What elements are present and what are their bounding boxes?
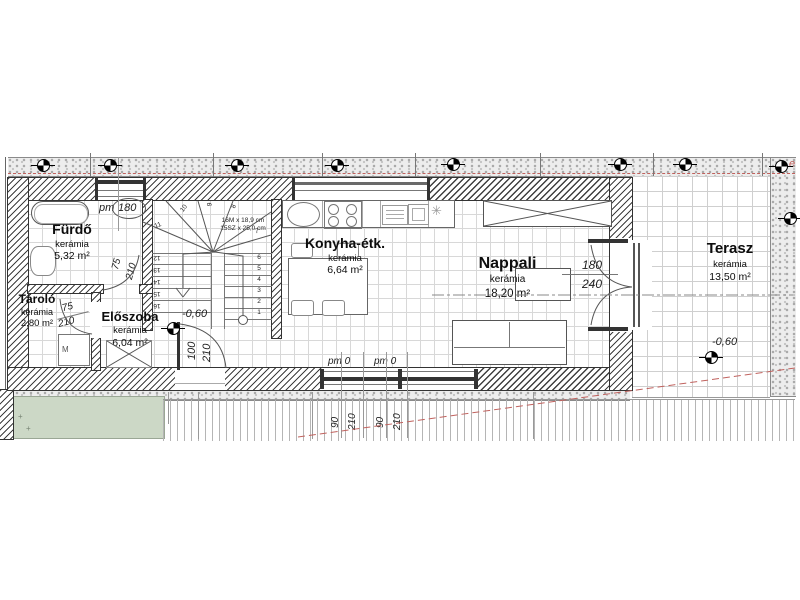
kitchen-window-frame — [295, 182, 427, 185]
floor-plan: + + M — [0, 0, 800, 600]
garden-area — [13, 396, 165, 439]
counter-divider — [322, 201, 323, 227]
witness-line — [312, 392, 313, 439]
stove-burner — [328, 216, 339, 227]
stair-step — [152, 264, 211, 265]
bathroom-window-sill — [98, 196, 143, 197]
sofa-cushion-divider — [509, 322, 510, 347]
room-material: kerámia — [37, 239, 107, 251]
entry-door-opening — [175, 368, 225, 390]
room-label-konyha: Konyha-étk. kerámia 6,64 m² — [295, 235, 395, 278]
stair-number: 15 — [150, 290, 164, 297]
stove-burner — [328, 204, 339, 215]
terrace-door-panel — [633, 243, 635, 327]
kitchen-basin-inner — [412, 208, 425, 221]
dim-window1-width: 90 — [330, 417, 341, 428]
window-jamb — [143, 178, 146, 200]
kitchen-window-sill — [295, 190, 427, 191]
stair-number: 6 — [252, 254, 266, 261]
stair-spec-line2: 15SZ x 25,0 cm — [193, 225, 293, 233]
bathroom-window-frame — [98, 180, 143, 184]
witness-line — [198, 392, 199, 439]
room-name: Tároló — [6, 292, 68, 307]
survey-marker-icon — [699, 351, 723, 364]
stair-spec-text: 16M x 18,9 cm 15SZ x 25,0 cm — [193, 217, 293, 233]
stair-number: 3 — [252, 287, 266, 294]
window-jamb — [320, 369, 324, 389]
paving-strip-bottom — [163, 399, 795, 441]
dim-entry-door-height: 210 — [201, 344, 213, 362]
survey-marker-icon — [31, 159, 55, 172]
dim-entry-door-width: 100 — [186, 342, 198, 360]
terrace-door-head — [588, 239, 628, 243]
stove-burner — [346, 204, 357, 215]
counter-divider — [380, 201, 381, 227]
red-setback-line-top — [8, 173, 795, 174]
room-material: kerámia — [6, 307, 68, 318]
washing-machine: M — [58, 334, 90, 366]
bathroom-window-sill — [98, 190, 143, 191]
room-name: Terasz — [698, 240, 762, 259]
dining-chair — [291, 300, 314, 316]
window-jamb — [95, 178, 98, 200]
gravel-strip-right — [770, 157, 796, 397]
elevation-terrace: -0,60 — [712, 336, 737, 348]
witness-line — [168, 392, 169, 424]
witness-line — [363, 352, 364, 438]
survey-marker-icon — [608, 158, 632, 171]
stair-step — [152, 288, 211, 289]
stair-winder-number: 9 — [206, 197, 214, 211]
room-label-nappali: Nappali kerámia 18,20 m² — [445, 254, 570, 301]
survey-marker-icon — [98, 159, 122, 172]
dishwasher — [382, 205, 408, 225]
stair-step — [152, 300, 211, 301]
room-label-terasz: Terasz kerámia 13,50 m² — [698, 240, 762, 284]
stair-step — [152, 276, 211, 277]
window-jamb — [427, 178, 430, 200]
boundary-line-left — [5, 157, 6, 390]
fridge-icon: ✳ — [431, 203, 442, 219]
band-tick — [213, 153, 214, 180]
elevation-stair: -0,60 — [182, 308, 207, 320]
room-area: 6,04 m² — [96, 337, 164, 350]
stair-number: 5 — [252, 265, 266, 272]
stair-number: 12 — [150, 254, 164, 261]
retaining-wall-left — [0, 390, 13, 439]
survey-marker-icon — [673, 158, 697, 171]
band-tick — [322, 153, 323, 180]
band-tick — [415, 153, 416, 180]
dim-window1-parapet: pm 0 — [328, 356, 350, 367]
stair-step — [225, 319, 272, 320]
dim-terrace-door-width: 180 — [566, 258, 618, 272]
stove-burner — [346, 216, 357, 227]
stair-eye-line — [211, 253, 212, 329]
terrace-door-head — [588, 327, 628, 331]
stair-number: 16 — [150, 302, 164, 309]
survey-marker-icon — [778, 212, 800, 225]
dim-window1-height: 210 — [347, 413, 358, 430]
survey-marker-icon — [441, 158, 465, 171]
witness-line — [341, 352, 342, 438]
terrace-door-panel — [638, 243, 640, 327]
room-area: 13,50 m² — [698, 271, 762, 284]
room-area: 6,64 m² — [295, 264, 395, 277]
stair-number: 13 — [150, 266, 164, 273]
dim-window2-height: 210 — [392, 413, 403, 430]
room-name: Nappali — [445, 254, 570, 274]
window-jamb — [292, 178, 295, 200]
stair-spec-line1: 16M x 18,9 cm — [193, 217, 293, 225]
room-name: Fürdő — [37, 221, 107, 239]
room-material: kerámia — [295, 253, 395, 265]
window-jamb — [474, 369, 478, 389]
stair-number: 14 — [150, 278, 164, 285]
survey-marker-icon — [161, 322, 185, 335]
counter-divider — [362, 201, 363, 227]
garden-plus-mark: + — [18, 412, 23, 421]
garden-plus-mark: + — [26, 424, 31, 433]
stair-number: 2 — [252, 298, 266, 305]
dim-terrace-door-height: 240 — [566, 277, 618, 291]
witness-line — [386, 352, 387, 438]
window-mullion — [398, 369, 402, 389]
witness-line — [533, 392, 534, 439]
room-label-furdo: Fürdő kerámia 5,32 m² — [37, 221, 107, 264]
survey-marker-icon — [769, 160, 793, 173]
band-tick — [90, 153, 91, 180]
washing-machine-label: M — [62, 345, 69, 354]
room-name: Konyha-étk. — [295, 235, 395, 253]
room-area: 5,32 m² — [37, 250, 107, 263]
room-material: kerámia — [445, 274, 570, 287]
dining-chair — [322, 300, 345, 316]
room-material: kerámia — [698, 259, 762, 271]
band-tick — [540, 153, 541, 180]
entry-threshold — [175, 383, 225, 384]
room-name: Előszoba — [96, 309, 164, 325]
stair-number: 1 — [252, 309, 266, 316]
witness-line — [407, 352, 408, 438]
stair-eye-line — [224, 253, 225, 329]
terrace-floor — [632, 176, 770, 398]
dim-window2-width: 90 — [375, 417, 386, 428]
stair-number: 4 — [252, 276, 266, 283]
terrace-door-recess — [632, 240, 652, 330]
room-area: 18,20 m² — [445, 287, 570, 301]
survey-marker-icon — [325, 159, 349, 172]
room-label-eloszoba: Előszoba kerámia 6,04 m² — [96, 309, 164, 350]
survey-marker-icon — [225, 159, 249, 172]
wardrobe — [483, 200, 612, 227]
dim-fraction-line — [562, 274, 618, 275]
wall-left — [8, 178, 28, 390]
room-material: kerámia — [96, 325, 164, 337]
sofa-seat-line — [454, 347, 565, 348]
